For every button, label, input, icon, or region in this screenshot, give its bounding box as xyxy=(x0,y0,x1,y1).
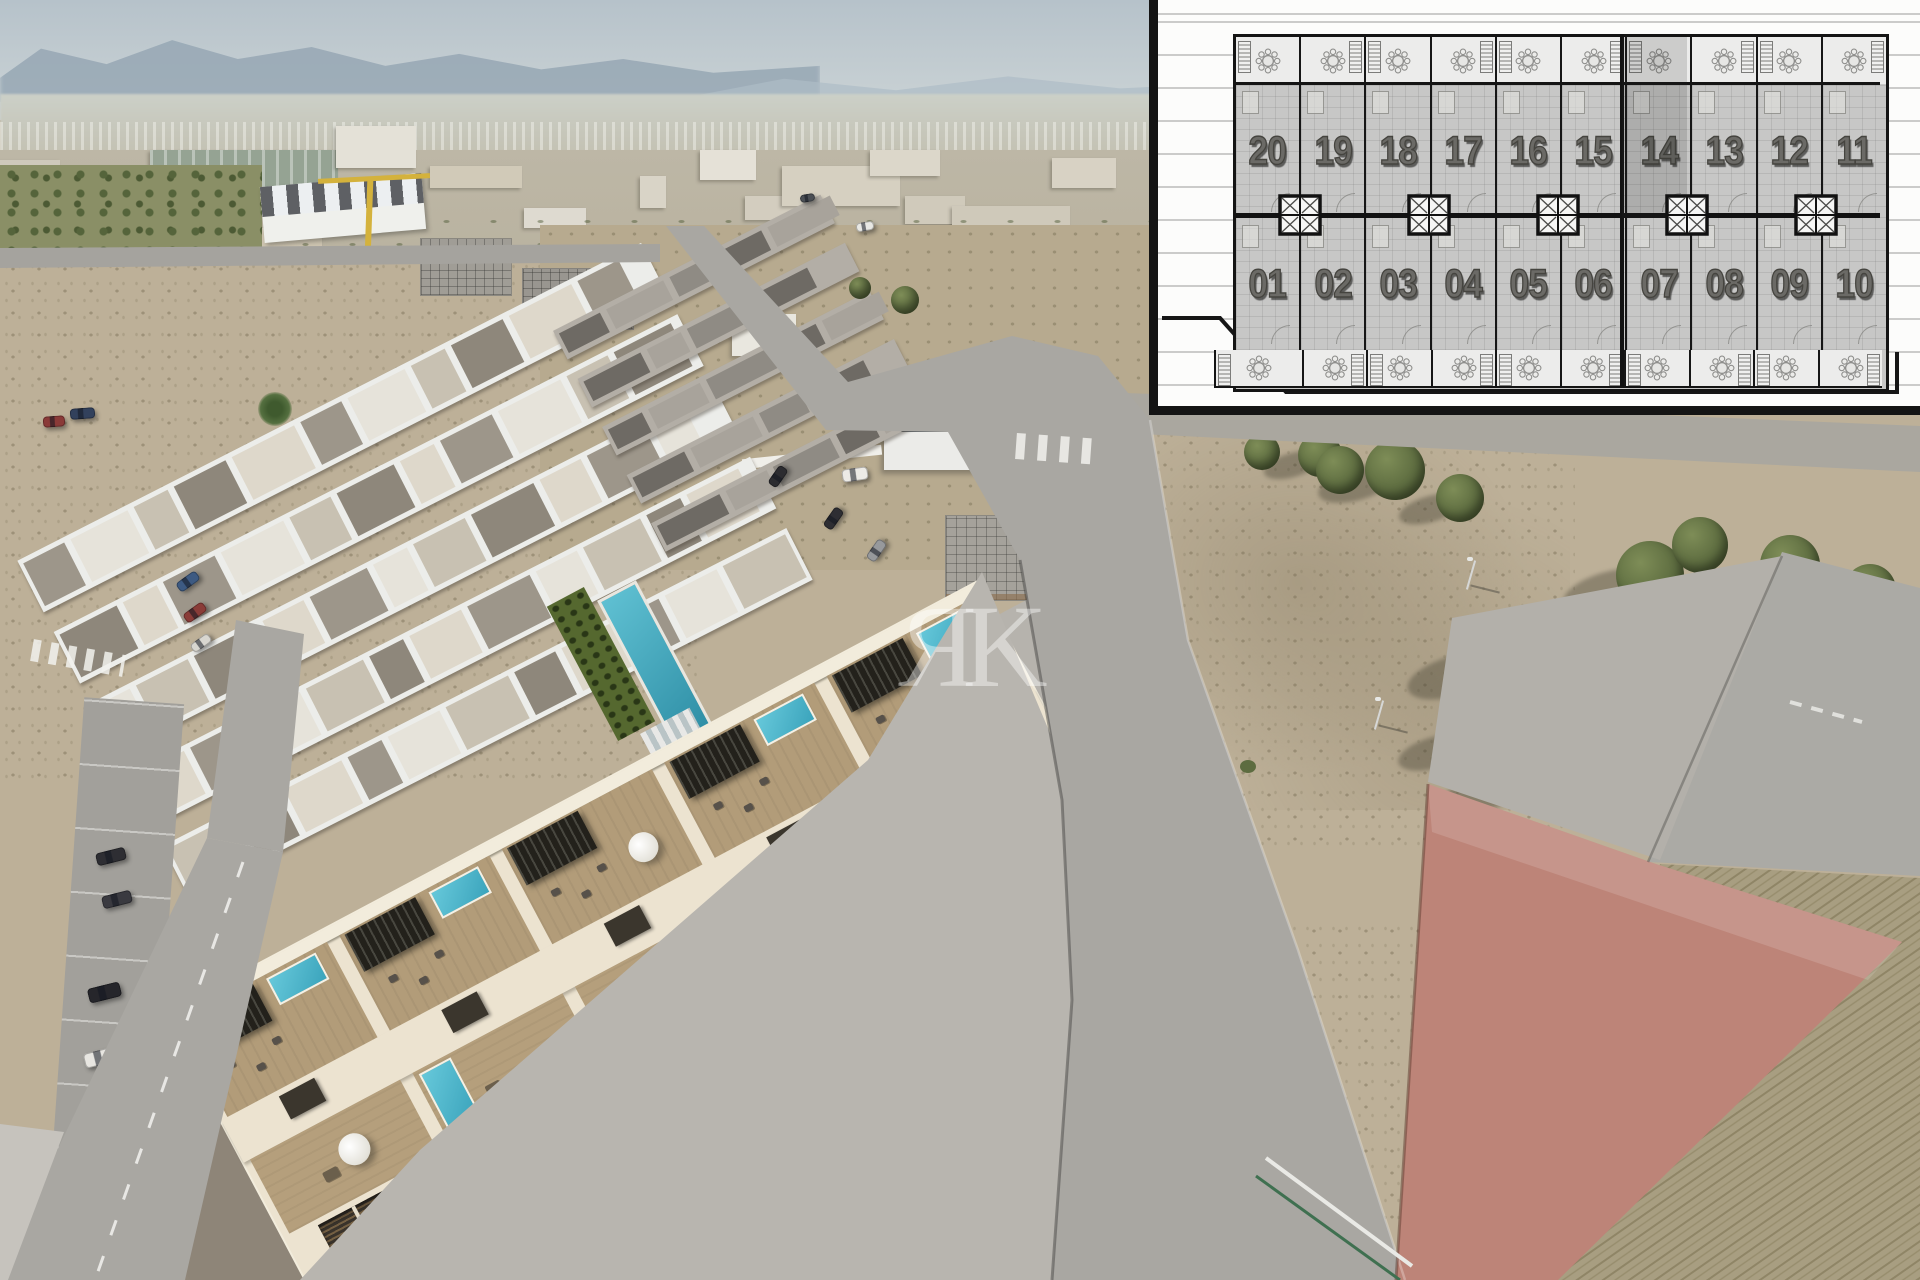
terrace-cell-unit-18 xyxy=(1366,37,1431,84)
unit-cell-10: 10 xyxy=(1823,218,1886,350)
screenshot-root: ЯK 2019181716151413121101020304050607080… xyxy=(0,0,1920,1280)
stairs-icon xyxy=(1349,41,1362,73)
stairs-icon xyxy=(1499,354,1512,386)
stairs-icon xyxy=(1757,354,1770,386)
plan-terrace-line xyxy=(1236,82,1880,85)
dining-table-icon xyxy=(1776,48,1802,74)
dining-table-icon xyxy=(1387,355,1413,381)
stairs-icon xyxy=(1871,41,1884,73)
unit-cell-06: 06 xyxy=(1562,218,1627,350)
stairs-icon xyxy=(1351,354,1364,386)
elevator-cluster xyxy=(1407,194,1451,236)
plan-grid: 2019181716151413121101020304050607080910 xyxy=(1233,34,1889,392)
dining-table-icon xyxy=(1580,355,1606,381)
elevator-cluster xyxy=(1536,194,1580,236)
dining-table-icon xyxy=(1516,355,1542,381)
elevator-shaft-icon xyxy=(1407,194,1451,236)
dining-table-icon xyxy=(1320,48,1346,74)
unit-number: 03 xyxy=(1379,264,1416,304)
terrace-cell-unit-05 xyxy=(1497,350,1561,386)
stairs-icon xyxy=(1867,354,1880,386)
unit-number: 17 xyxy=(1445,131,1482,171)
highlighted-unit-14 xyxy=(1622,37,1687,218)
terrace-cell-unit-03 xyxy=(1368,350,1432,386)
unit-cell-02: 02 xyxy=(1301,218,1366,350)
stairs-icon xyxy=(1218,354,1231,386)
dining-table-icon xyxy=(1644,355,1670,381)
unit-number: 08 xyxy=(1705,264,1742,304)
unit-cell-09: 09 xyxy=(1758,218,1823,350)
unit-number: 13 xyxy=(1705,131,1742,171)
stairs-icon xyxy=(1741,41,1754,73)
unit-number: 09 xyxy=(1771,264,1808,304)
unit-cell-01: 01 xyxy=(1236,218,1301,350)
terrace-cell-unit-15 xyxy=(1562,37,1627,84)
stairs-icon xyxy=(1760,41,1773,73)
terrace-cell-unit-07 xyxy=(1626,350,1690,386)
crosswalk-west xyxy=(32,650,124,666)
elevator-shaft-icon xyxy=(1536,194,1580,236)
dining-table-icon xyxy=(1711,48,1737,74)
dining-table-icon xyxy=(1709,355,1735,381)
unit-cell-07: 07 xyxy=(1627,218,1692,350)
terrace-cell-unit-19 xyxy=(1301,37,1366,84)
terrace-cell-unit-17 xyxy=(1432,37,1497,84)
stairs-icon xyxy=(1480,41,1493,73)
unit-number: 01 xyxy=(1249,264,1286,304)
dining-table-icon xyxy=(1838,355,1864,381)
dining-table-icon xyxy=(1515,48,1541,74)
unit-cell-05: 05 xyxy=(1497,218,1562,350)
terrace-cell-unit-11 xyxy=(1823,37,1886,84)
elevator-cluster xyxy=(1665,194,1709,236)
unit-cell-04: 04 xyxy=(1432,218,1497,350)
terrace-cell-unit-20 xyxy=(1236,37,1301,84)
terrace-cell-unit-08 xyxy=(1691,350,1755,386)
terrace-cell-unit-13 xyxy=(1692,37,1757,84)
unit-number: 19 xyxy=(1314,131,1351,171)
unit-number: 15 xyxy=(1575,131,1612,171)
plan-terrace-row xyxy=(1236,37,1886,84)
dining-table-icon xyxy=(1773,355,1799,381)
elevator-cluster xyxy=(1794,194,1838,236)
terrace-cell-unit-09 xyxy=(1755,350,1819,386)
unit-number: 18 xyxy=(1379,131,1416,171)
elevator-shaft-icon xyxy=(1278,194,1322,236)
unit-number: 10 xyxy=(1836,264,1873,304)
unit-number: 07 xyxy=(1640,264,1677,304)
terrace-cell-unit-04 xyxy=(1433,350,1497,386)
stairs-icon xyxy=(1368,41,1381,73)
street-west-upper xyxy=(207,620,304,852)
terrace-cell-unit-12 xyxy=(1758,37,1823,84)
terrace-cell-unit-06 xyxy=(1562,350,1626,386)
dining-table-icon xyxy=(1385,48,1411,74)
unit-number: 12 xyxy=(1771,131,1808,171)
watermark: ЯK xyxy=(898,588,1034,706)
unit-cell-08: 08 xyxy=(1692,218,1757,350)
stairs-icon xyxy=(1738,354,1751,386)
unit-number: 04 xyxy=(1445,264,1482,304)
stairs-icon xyxy=(1499,41,1512,73)
dining-table-icon xyxy=(1450,48,1476,74)
unit-number: 06 xyxy=(1575,264,1612,304)
dining-table-icon xyxy=(1581,48,1607,74)
terrace-cell-unit-16 xyxy=(1497,37,1562,84)
stairs-icon xyxy=(1370,354,1383,386)
dining-table-icon xyxy=(1246,355,1272,381)
street-west xyxy=(0,838,283,1280)
dining-table-icon xyxy=(1255,48,1281,74)
terrace-cell-unit-10 xyxy=(1820,350,1882,386)
stairs-icon xyxy=(1628,354,1641,386)
elevator-cluster xyxy=(1278,194,1322,236)
dining-table-icon xyxy=(1451,355,1477,381)
unit-number: 16 xyxy=(1510,131,1547,171)
road-town-edge xyxy=(0,244,660,268)
unit-cell-03: 03 xyxy=(1366,218,1431,350)
stairs-icon xyxy=(1238,41,1251,73)
dining-table-icon xyxy=(1841,48,1867,74)
unit-number: 05 xyxy=(1510,264,1547,304)
terrace-cell-unit-02 xyxy=(1304,350,1368,386)
dining-table-icon xyxy=(1322,355,1348,381)
unit-number: 02 xyxy=(1314,264,1351,304)
plan-unit-row: 01020304050607080910 xyxy=(1236,218,1886,350)
terrace-cell-unit-01 xyxy=(1216,350,1304,386)
unit-number: 11 xyxy=(1837,131,1872,171)
unit-number: 20 xyxy=(1249,131,1286,171)
elevator-shaft-icon xyxy=(1794,194,1838,236)
floor-plan-overlay: 2019181716151413121101020304050607080910 xyxy=(1149,0,1920,415)
plan-terrace-row xyxy=(1214,350,1882,388)
elevator-shaft-icon xyxy=(1665,194,1709,236)
stairs-icon xyxy=(1480,354,1493,386)
